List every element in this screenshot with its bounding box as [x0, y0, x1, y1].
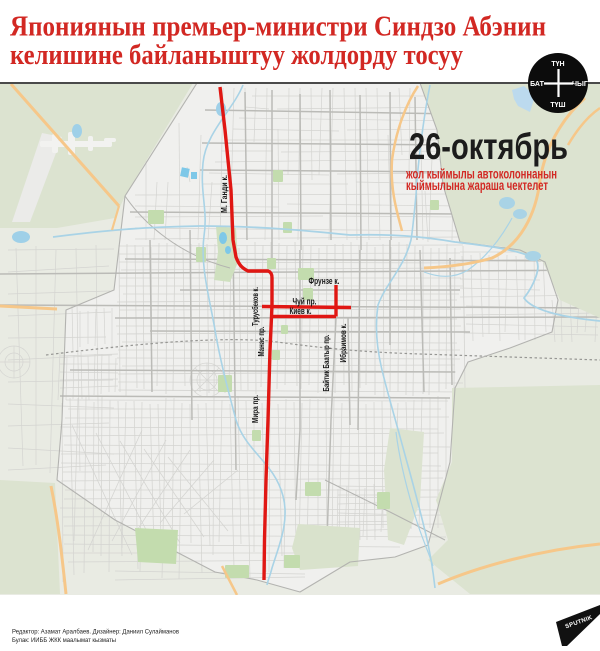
svg-text:келишине байланыштуу жолдорду: келишине байланыштуу жолдорду тосуу	[10, 39, 463, 71]
svg-text:кыймылына жараша чектелет: кыймылына жараша чектелет	[406, 178, 548, 193]
svg-text:Чуй пр.: Чуй пр.	[293, 296, 317, 306]
svg-text:26-октябрь: 26-октябрь	[409, 125, 568, 167]
svg-text:Байтик Баатыр пр.: Байтик Баатыр пр.	[321, 335, 331, 392]
svg-text:Мира пр.: Мира пр.	[250, 395, 260, 423]
svg-text:Редактор: Азамат Аралбаев. Диз: Редактор: Азамат Аралбаев. Дизайнер: Дан…	[12, 628, 179, 636]
svg-text:Ибраимов к.: Ибраимов к.	[338, 324, 348, 363]
svg-text:Турусбеков к.: Турусбеков к.	[250, 287, 260, 326]
svg-text:Киев к.: Киев к.	[290, 306, 312, 316]
svg-text:Манас пр.: Манас пр.	[256, 327, 266, 357]
svg-text:Япониянын премьер-министри Син: Япониянын премьер-министри Синдзо Абэнин	[10, 11, 546, 43]
svg-text:М. Ганди к.: М. Ганди к.	[219, 175, 229, 213]
svg-text:ЧЫГ: ЧЫГ	[572, 81, 588, 88]
svg-text:ТҮН: ТҮН	[551, 61, 564, 68]
svg-text:Булак: ИИББ ЖКК маалымат кызма: Булак: ИИББ ЖКК маалымат кызматы	[12, 637, 116, 644]
svg-text:ТҮШ: ТҮШ	[550, 102, 565, 109]
svg-text:Фрунзе к.: Фрунзе к.	[309, 276, 340, 286]
svg-text:БАТ: БАТ	[530, 81, 544, 88]
